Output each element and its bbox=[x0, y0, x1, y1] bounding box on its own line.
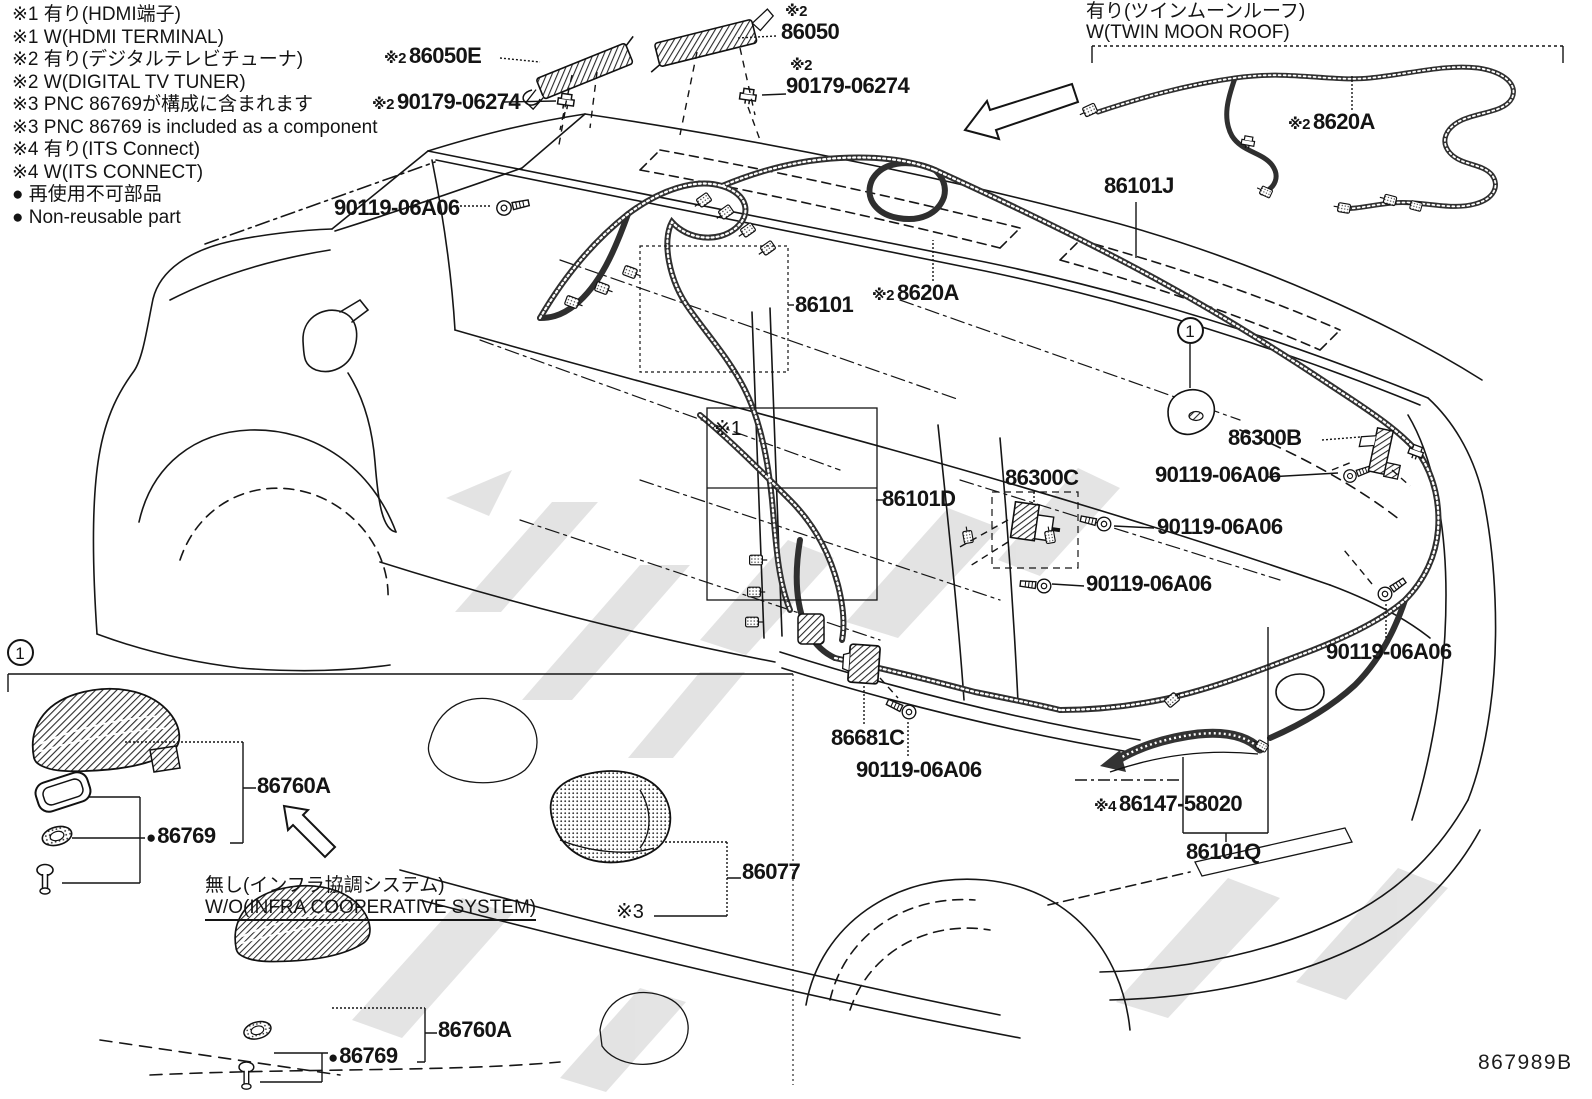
callout-text: 86077 bbox=[742, 859, 800, 884]
diagram-note: 無し(インフラ協調システム) bbox=[205, 876, 445, 896]
part-number-callout: 86101J bbox=[1104, 174, 1174, 198]
legend-note-line: ※3 PNC 86769が構成に含まれます bbox=[12, 94, 378, 117]
callout-text: 8620A bbox=[1313, 109, 1375, 134]
part-number-callout: 86077 bbox=[742, 860, 800, 884]
non-reusable-bullet: ● bbox=[146, 828, 156, 847]
box-86681C bbox=[842, 644, 881, 684]
callout-text: 無し(インフラ協調システム) bbox=[205, 875, 445, 896]
part-number-callout: 86300C bbox=[1005, 466, 1078, 490]
clip-90179-06274 bbox=[739, 88, 757, 105]
callout-text: 86681C bbox=[831, 725, 904, 750]
callout-text: 86147-58020 bbox=[1119, 791, 1242, 816]
part-number-callout: 86101 bbox=[795, 293, 853, 317]
callout-text: 86300B bbox=[1228, 425, 1301, 450]
roof-clip-detail-1 bbox=[1168, 390, 1214, 435]
screw-90119-06A06 bbox=[1020, 577, 1052, 594]
diagram-note: W/O(INFRA COOPERATIVE SYSTEM) bbox=[205, 898, 536, 918]
drawing-number: 867989B bbox=[1478, 1052, 1573, 1074]
inset-arrow bbox=[284, 806, 335, 857]
diagram-note: ※3 bbox=[616, 902, 644, 923]
callout-prefix: ※2 bbox=[872, 287, 894, 304]
callout-text: W(TWIN MOON ROOF) bbox=[1086, 22, 1290, 43]
callout-text: 86760A bbox=[257, 773, 330, 798]
part-number-callout: ●86769 bbox=[328, 1044, 397, 1068]
shark-fin-antenna-86077 bbox=[551, 771, 671, 862]
callout-text: 86769 bbox=[157, 823, 215, 848]
callout-text: ※3 bbox=[616, 901, 644, 923]
callout-text: 86300C bbox=[1005, 465, 1078, 490]
callout-text: 86101D bbox=[882, 486, 955, 511]
screw-90119-06A06 bbox=[495, 196, 530, 217]
part-number-callout: 90119-06A06 bbox=[334, 196, 460, 220]
circled-detail-marker: 1 bbox=[1177, 317, 1204, 344]
callout-text: 90119-06A06 bbox=[334, 195, 460, 220]
legend-note-line: ※4 W(ITS CONNECT) bbox=[12, 162, 378, 185]
callout-text: 90119-06A06 bbox=[1086, 571, 1212, 596]
part-number-callout: ※28620A bbox=[1288, 110, 1375, 134]
roof-wire-harness-86101 bbox=[540, 158, 1438, 739]
callout-text: 86769 bbox=[339, 1043, 397, 1068]
diagram-note: 有り(ツインムーンルーフ) bbox=[1086, 2, 1305, 22]
main-view-arrow bbox=[965, 84, 1078, 139]
legend-note-line: ※2 W(DIGITAL TV TUNER) bbox=[12, 72, 378, 95]
rear-glass-antenna-86147 bbox=[1100, 733, 1260, 772]
part-number-callout: 86300B bbox=[1228, 426, 1301, 450]
legend-note-line: ※3 PNC 86769 is included as a component bbox=[12, 117, 378, 140]
callout-text: W/O(INFRA COOPERATIVE SYSTEM) bbox=[205, 897, 536, 921]
callout-text: 86101 bbox=[795, 292, 853, 317]
part-number-callout: ※286050E bbox=[384, 44, 481, 68]
part-number-callout: ※28620A bbox=[872, 281, 959, 305]
part-number-callout: 86681C bbox=[831, 726, 904, 750]
screw-90119-06A06 bbox=[885, 696, 918, 721]
callout-text: 86050 bbox=[781, 19, 839, 44]
non-reusable-bullet: ● bbox=[328, 1048, 338, 1067]
callout-text: 90179-06274 bbox=[786, 73, 909, 98]
tuner-bracket-86050E bbox=[518, 36, 644, 110]
part-number-callout: ●86769 bbox=[146, 824, 215, 848]
part-number-callout: 90119-06A06 bbox=[856, 758, 982, 782]
callout-text: 90119-06A06 bbox=[1326, 639, 1452, 664]
callout-prefix: ※2 bbox=[790, 58, 909, 74]
callout-prefix: ※4 bbox=[1094, 798, 1116, 815]
callout-text: 8620A bbox=[897, 280, 959, 305]
legend-note-line: ● 再使用不可部品 bbox=[12, 184, 378, 207]
part-number-callout: 90119-06A06 bbox=[1086, 572, 1212, 596]
diagram-note: W(TWIN MOON ROOF) bbox=[1086, 23, 1290, 43]
part-number-callout: 86760A bbox=[438, 1018, 511, 1042]
callout-prefix: ※2 bbox=[1288, 116, 1310, 133]
callout-text: 90119-06A06 bbox=[856, 757, 982, 782]
tuner-bracket-86050 bbox=[643, 8, 779, 72]
legend-notes: ※1 有り(HDMI端子)※1 W(HDMI TERMINAL)※2 有り(デジ… bbox=[12, 4, 378, 229]
diagram-note: ※1 bbox=[714, 419, 742, 440]
callout-text: 90119-06A06 bbox=[1155, 462, 1281, 487]
legend-note-line: ※2 有り(デジタルテレビチューナ) bbox=[12, 49, 378, 72]
part-number-callout: 90119-06A06 bbox=[1326, 640, 1452, 664]
part-number-callout: ※286050 bbox=[781, 4, 839, 44]
screw-90119-06A06 bbox=[1342, 463, 1373, 484]
part-number-callout: ※290179-06274 bbox=[372, 90, 520, 114]
callout-text: 86050E bbox=[409, 43, 481, 68]
circled-detail-marker: 1 bbox=[7, 639, 34, 666]
part-number-callout: ※486147-58020 bbox=[1094, 792, 1242, 816]
parts-catalog-diagram-page: ※1 有り(HDMI端子)※1 W(HDMI TERMINAL)※2 有り(デジ… bbox=[0, 0, 1592, 1099]
callout-prefix: ※2 bbox=[372, 96, 394, 113]
callout-prefix: ※2 bbox=[384, 50, 406, 67]
legend-note-line: ※4 有り(ITS Connect) bbox=[12, 139, 378, 162]
callout-text: 86101J bbox=[1104, 173, 1174, 198]
callout-text: ※1 bbox=[714, 418, 742, 440]
part-number-callout: 86760A bbox=[257, 774, 330, 798]
callout-text: 86101Q bbox=[1186, 839, 1261, 864]
legend-note-line: ● Non-reusable part bbox=[12, 207, 378, 230]
callout-text: 90179-06274 bbox=[397, 89, 520, 114]
callout-text: 90119-06A06 bbox=[1157, 514, 1283, 539]
part-number-callout: 90119-06A06 bbox=[1155, 463, 1281, 487]
callout-prefix: ※2 bbox=[785, 4, 839, 20]
part-number-callout: 86101Q bbox=[1186, 840, 1261, 864]
callout-text: 86760A bbox=[438, 1017, 511, 1042]
shark-fin-antenna-86760A bbox=[33, 689, 180, 894]
part-number-callout: ※290179-06274 bbox=[786, 58, 909, 98]
callout-text: 867989B bbox=[1478, 1051, 1573, 1074]
part-number-callout: 86101D bbox=[882, 487, 955, 511]
callout-text: 有り(ツインムーンルーフ) bbox=[1086, 1, 1305, 22]
legend-note-line: ※1 有り(HDMI端子) bbox=[12, 4, 378, 27]
legend-note-line: ※1 W(HDMI TERMINAL) bbox=[12, 27, 378, 50]
part-number-callout: 90119-06A06 bbox=[1157, 515, 1283, 539]
